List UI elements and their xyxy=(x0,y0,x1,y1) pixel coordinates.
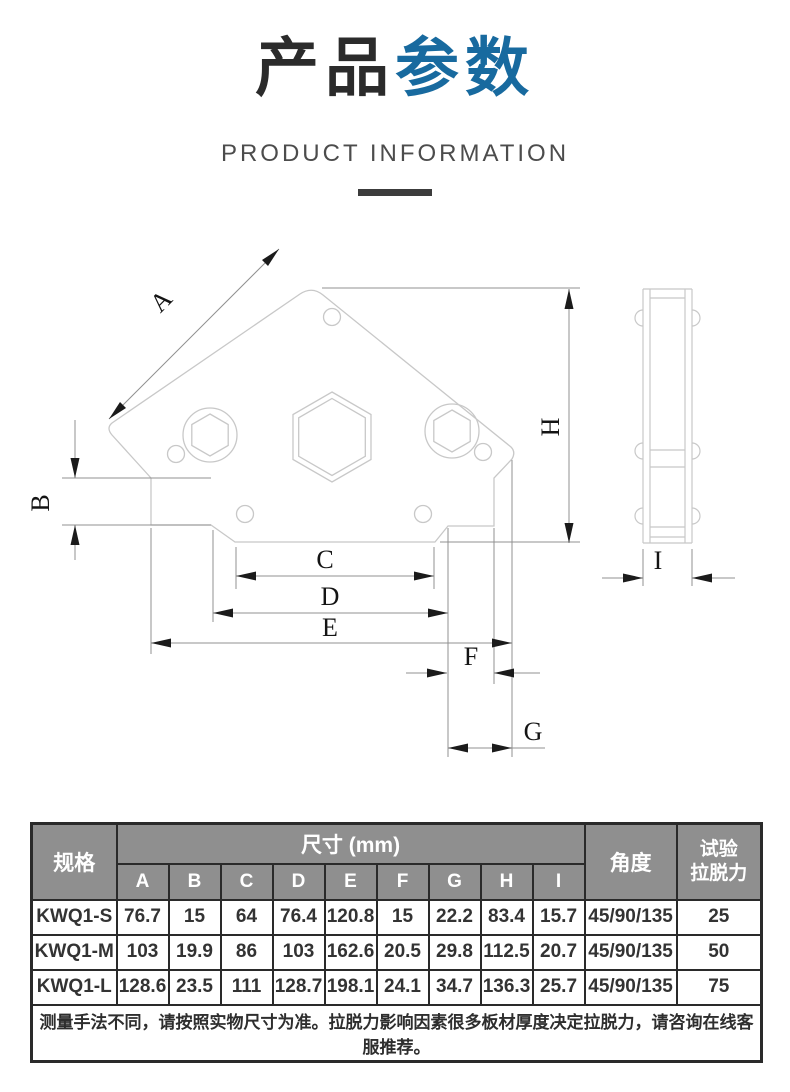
side-view xyxy=(635,289,700,543)
cell-value: 15.7 xyxy=(533,900,585,935)
left-socket-hexagon xyxy=(192,414,228,456)
cell-value: 128.6 xyxy=(117,970,169,1005)
product-information-page: 产品参数 PRODUCT INFORMATION xyxy=(0,0,790,1092)
left-socket-circle xyxy=(183,408,237,462)
cell-value: 103 xyxy=(117,935,169,970)
col-header-spec: 规格 xyxy=(32,824,117,900)
spec-table: 规格 尺寸 (mm) 角度 试验 拉脱力 A B C D E F G H I xyxy=(30,822,763,1063)
cell-value: 22.2 xyxy=(429,900,481,935)
technical-drawing: A B C D E F G H I xyxy=(0,0,790,800)
cell-value: 83.4 xyxy=(481,900,533,935)
cell-value: 76.4 xyxy=(273,900,325,935)
front-view xyxy=(109,290,514,542)
dimension-lines xyxy=(62,249,735,757)
cell-pull: 50 xyxy=(677,935,762,970)
cell-value: 15 xyxy=(169,900,221,935)
cell-value: 15 xyxy=(377,900,429,935)
side-bump xyxy=(635,310,643,326)
col-header-b: B xyxy=(169,864,221,900)
col-header-d: D xyxy=(273,864,325,900)
side-bump xyxy=(635,443,643,459)
right-socket-hexagon xyxy=(434,410,470,452)
row-spec: KWQ1-M xyxy=(32,935,117,970)
hole-bottom-left xyxy=(237,506,254,523)
table-note: 测量手法不同，请按照实物尺寸为准。拉脱力影响因素很多板材厚度决定拉脱力，请咨询在… xyxy=(32,1005,762,1062)
dim-label-i: I xyxy=(654,546,663,575)
col-header-i: I xyxy=(533,864,585,900)
dim-label-e: E xyxy=(322,613,338,642)
col-header-pull-line1: 试验 xyxy=(678,838,761,862)
col-header-c: C xyxy=(221,864,273,900)
table-row-kwq1-l: KWQ1-L 128.6 23.5 111 128.7 198.1 24.1 3… xyxy=(32,970,762,1005)
cell-value: 112.5 xyxy=(481,935,533,970)
col-header-angle: 角度 xyxy=(585,824,677,900)
col-header-pull: 试验 拉脱力 xyxy=(677,824,762,900)
col-header-g: G xyxy=(429,864,481,900)
hole-top xyxy=(324,309,341,326)
cell-angle: 45/90/135 xyxy=(585,970,677,1005)
row-spec: KWQ1-S xyxy=(32,900,117,935)
center-hexagon-inner xyxy=(299,399,366,476)
dim-label-a: A xyxy=(144,284,178,318)
cell-value: 20.7 xyxy=(533,935,585,970)
table-row-kwq1-m: KWQ1-M 103 19.9 86 103 162.6 20.5 29.8 1… xyxy=(32,935,762,970)
col-header-h: H xyxy=(481,864,533,900)
cell-value: 20.5 xyxy=(377,935,429,970)
col-header-e: E xyxy=(325,864,377,900)
row-spec: KWQ1-L xyxy=(32,970,117,1005)
col-header-a: A xyxy=(117,864,169,900)
right-socket-circle xyxy=(425,404,479,458)
cell-value: 34.7 xyxy=(429,970,481,1005)
hole-bottom-right xyxy=(415,506,432,523)
dim-label-f: F xyxy=(464,642,478,671)
side-bump xyxy=(692,443,700,459)
dimension-labels: A B C D E F G H I xyxy=(26,284,662,746)
cell-value: 29.8 xyxy=(429,935,481,970)
cell-value: 86 xyxy=(221,935,273,970)
cell-value: 19.9 xyxy=(169,935,221,970)
col-header-pull-line2: 拉脱力 xyxy=(678,862,761,886)
cell-value: 198.1 xyxy=(325,970,377,1005)
cell-value: 136.3 xyxy=(481,970,533,1005)
col-header-f: F xyxy=(377,864,429,900)
cell-value: 23.5 xyxy=(169,970,221,1005)
dim-label-g: G xyxy=(524,717,543,746)
cell-value: 128.7 xyxy=(273,970,325,1005)
col-header-size-group: 尺寸 (mm) xyxy=(117,824,585,864)
side-bump xyxy=(692,508,700,524)
side-bump xyxy=(635,508,643,524)
dim-label-c: C xyxy=(316,545,333,574)
cell-value: 120.8 xyxy=(325,900,377,935)
cell-value: 111 xyxy=(221,970,273,1005)
dim-label-b: B xyxy=(26,494,55,511)
dimension-arrows xyxy=(71,249,713,753)
cell-value: 64 xyxy=(221,900,273,935)
cell-value: 25.7 xyxy=(533,970,585,1005)
side-bump xyxy=(692,310,700,326)
table-row-kwq1-s: KWQ1-S 76.7 15 64 76.4 120.8 15 22.2 83.… xyxy=(32,900,762,935)
magnet-outline xyxy=(109,290,514,542)
center-hexagon-outer xyxy=(293,392,371,482)
cell-value: 162.6 xyxy=(325,935,377,970)
cell-value: 76.7 xyxy=(117,900,169,935)
cell-value: 103 xyxy=(273,935,325,970)
cell-angle: 45/90/135 xyxy=(585,900,677,935)
dim-label-h: H xyxy=(536,417,565,436)
table-note-row: 测量手法不同，请按照实物尺寸为准。拉脱力影响因素很多板材厚度决定拉脱力，请咨询在… xyxy=(32,1005,762,1062)
hole-right xyxy=(475,444,492,461)
cell-angle: 45/90/135 xyxy=(585,935,677,970)
hole-left xyxy=(168,446,185,463)
dim-label-d: D xyxy=(321,582,340,611)
cell-value: 24.1 xyxy=(377,970,429,1005)
cell-pull: 75 xyxy=(677,970,762,1005)
cell-pull: 25 xyxy=(677,900,762,935)
